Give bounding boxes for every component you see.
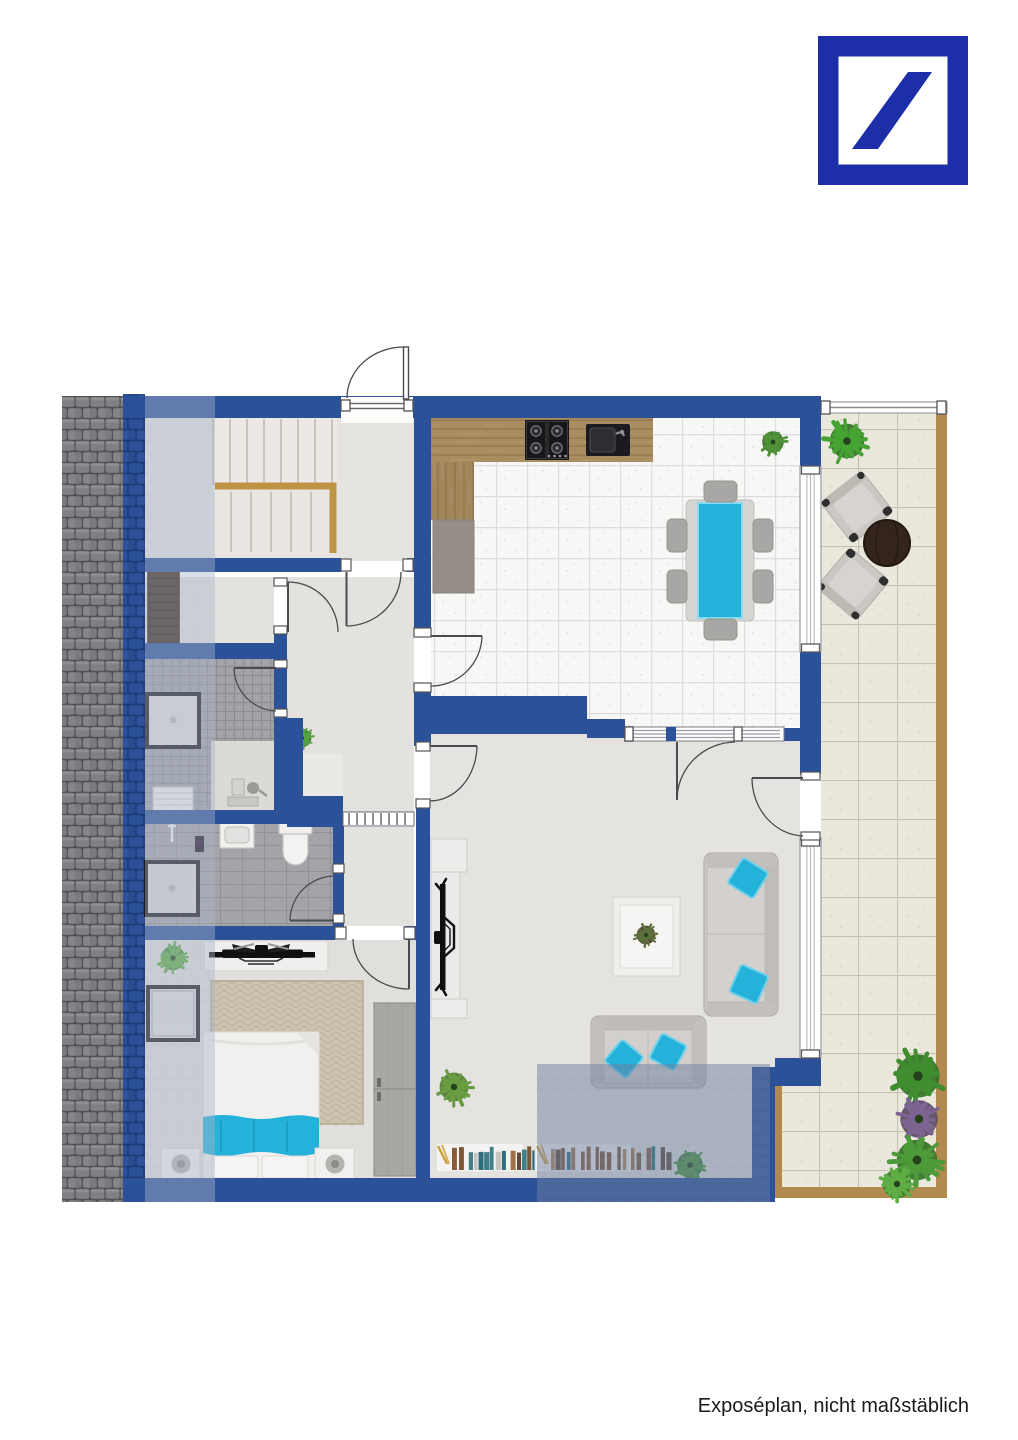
svg-text:Exposéplan, nicht maßstäblich: Exposéplan, nicht maßstäblich — [698, 1395, 969, 1417]
